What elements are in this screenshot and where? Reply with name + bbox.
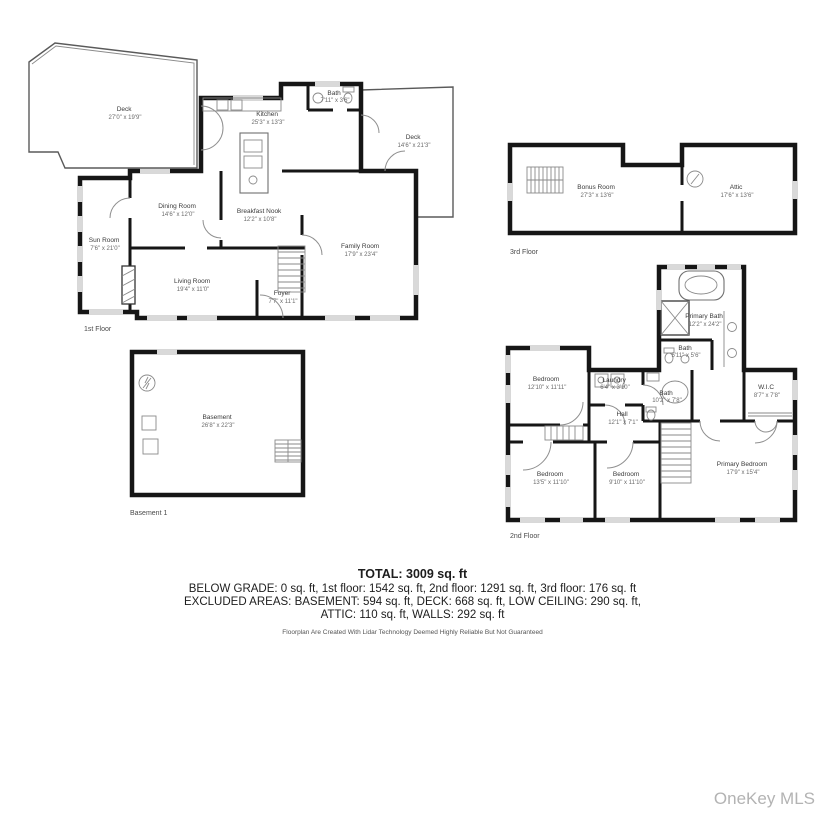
deck-outline-left bbox=[29, 43, 197, 168]
second-floor-label: 2nd Floor bbox=[510, 533, 540, 540]
third-floor-plan: Bonus Room 27'3" x 13'6" Attic 17'6" x 1… bbox=[505, 135, 805, 265]
floor-areas-text: BELOW GRADE: 0 sq. ft, 1st floor: 1542 s… bbox=[0, 583, 825, 595]
floorplan-sheet: Deck 27'0" x 19'9" Kitchen 25'3" x 13'3"… bbox=[0, 0, 825, 815]
watermark: OneKey MLS bbox=[714, 789, 815, 809]
excluded-areas-text: EXCLUDED AREAS: BASEMENT: 594 sq. ft, DE… bbox=[0, 596, 825, 608]
basement-label: Basement 1 bbox=[130, 510, 167, 517]
basement-plan: Basement 26'8" x 22'3" bbox=[125, 350, 310, 500]
total-area-text: TOTAL: 3009 sq. ft bbox=[0, 567, 825, 581]
kitchen-island-icon bbox=[240, 133, 268, 193]
second-floor-plan: Primary Bath 12'2" x 24'2" Bath 5'11" x … bbox=[505, 255, 805, 545]
excluded-areas-text-2: ATTIC: 110 sq. ft, WALLS: 292 sq. ft bbox=[0, 609, 825, 621]
first-floor-plan: Deck 27'0" x 19'9" Kitchen 25'3" x 13'3"… bbox=[25, 40, 465, 345]
area-summary: TOTAL: 3009 sq. ft BELOW GRADE: 0 sq. ft… bbox=[0, 567, 825, 636]
fireplace-icon bbox=[122, 266, 135, 304]
first-floor-label: 1st Floor bbox=[84, 326, 111, 333]
disclaimer-text: Floorplan Are Created With Lidar Technol… bbox=[0, 629, 825, 636]
bathtub-icon bbox=[679, 271, 724, 300]
